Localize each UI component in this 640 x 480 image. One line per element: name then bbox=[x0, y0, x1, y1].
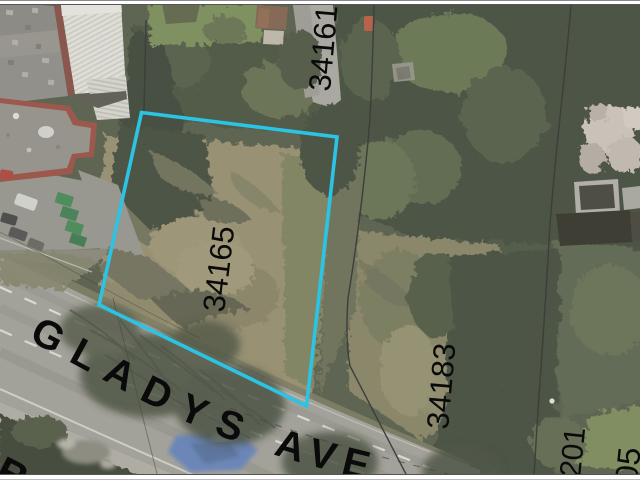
svg-text:201: 201 bbox=[554, 425, 592, 478]
svg-text:34183: 34183 bbox=[420, 342, 462, 431]
svg-text:34161: 34161 bbox=[302, 4, 344, 93]
